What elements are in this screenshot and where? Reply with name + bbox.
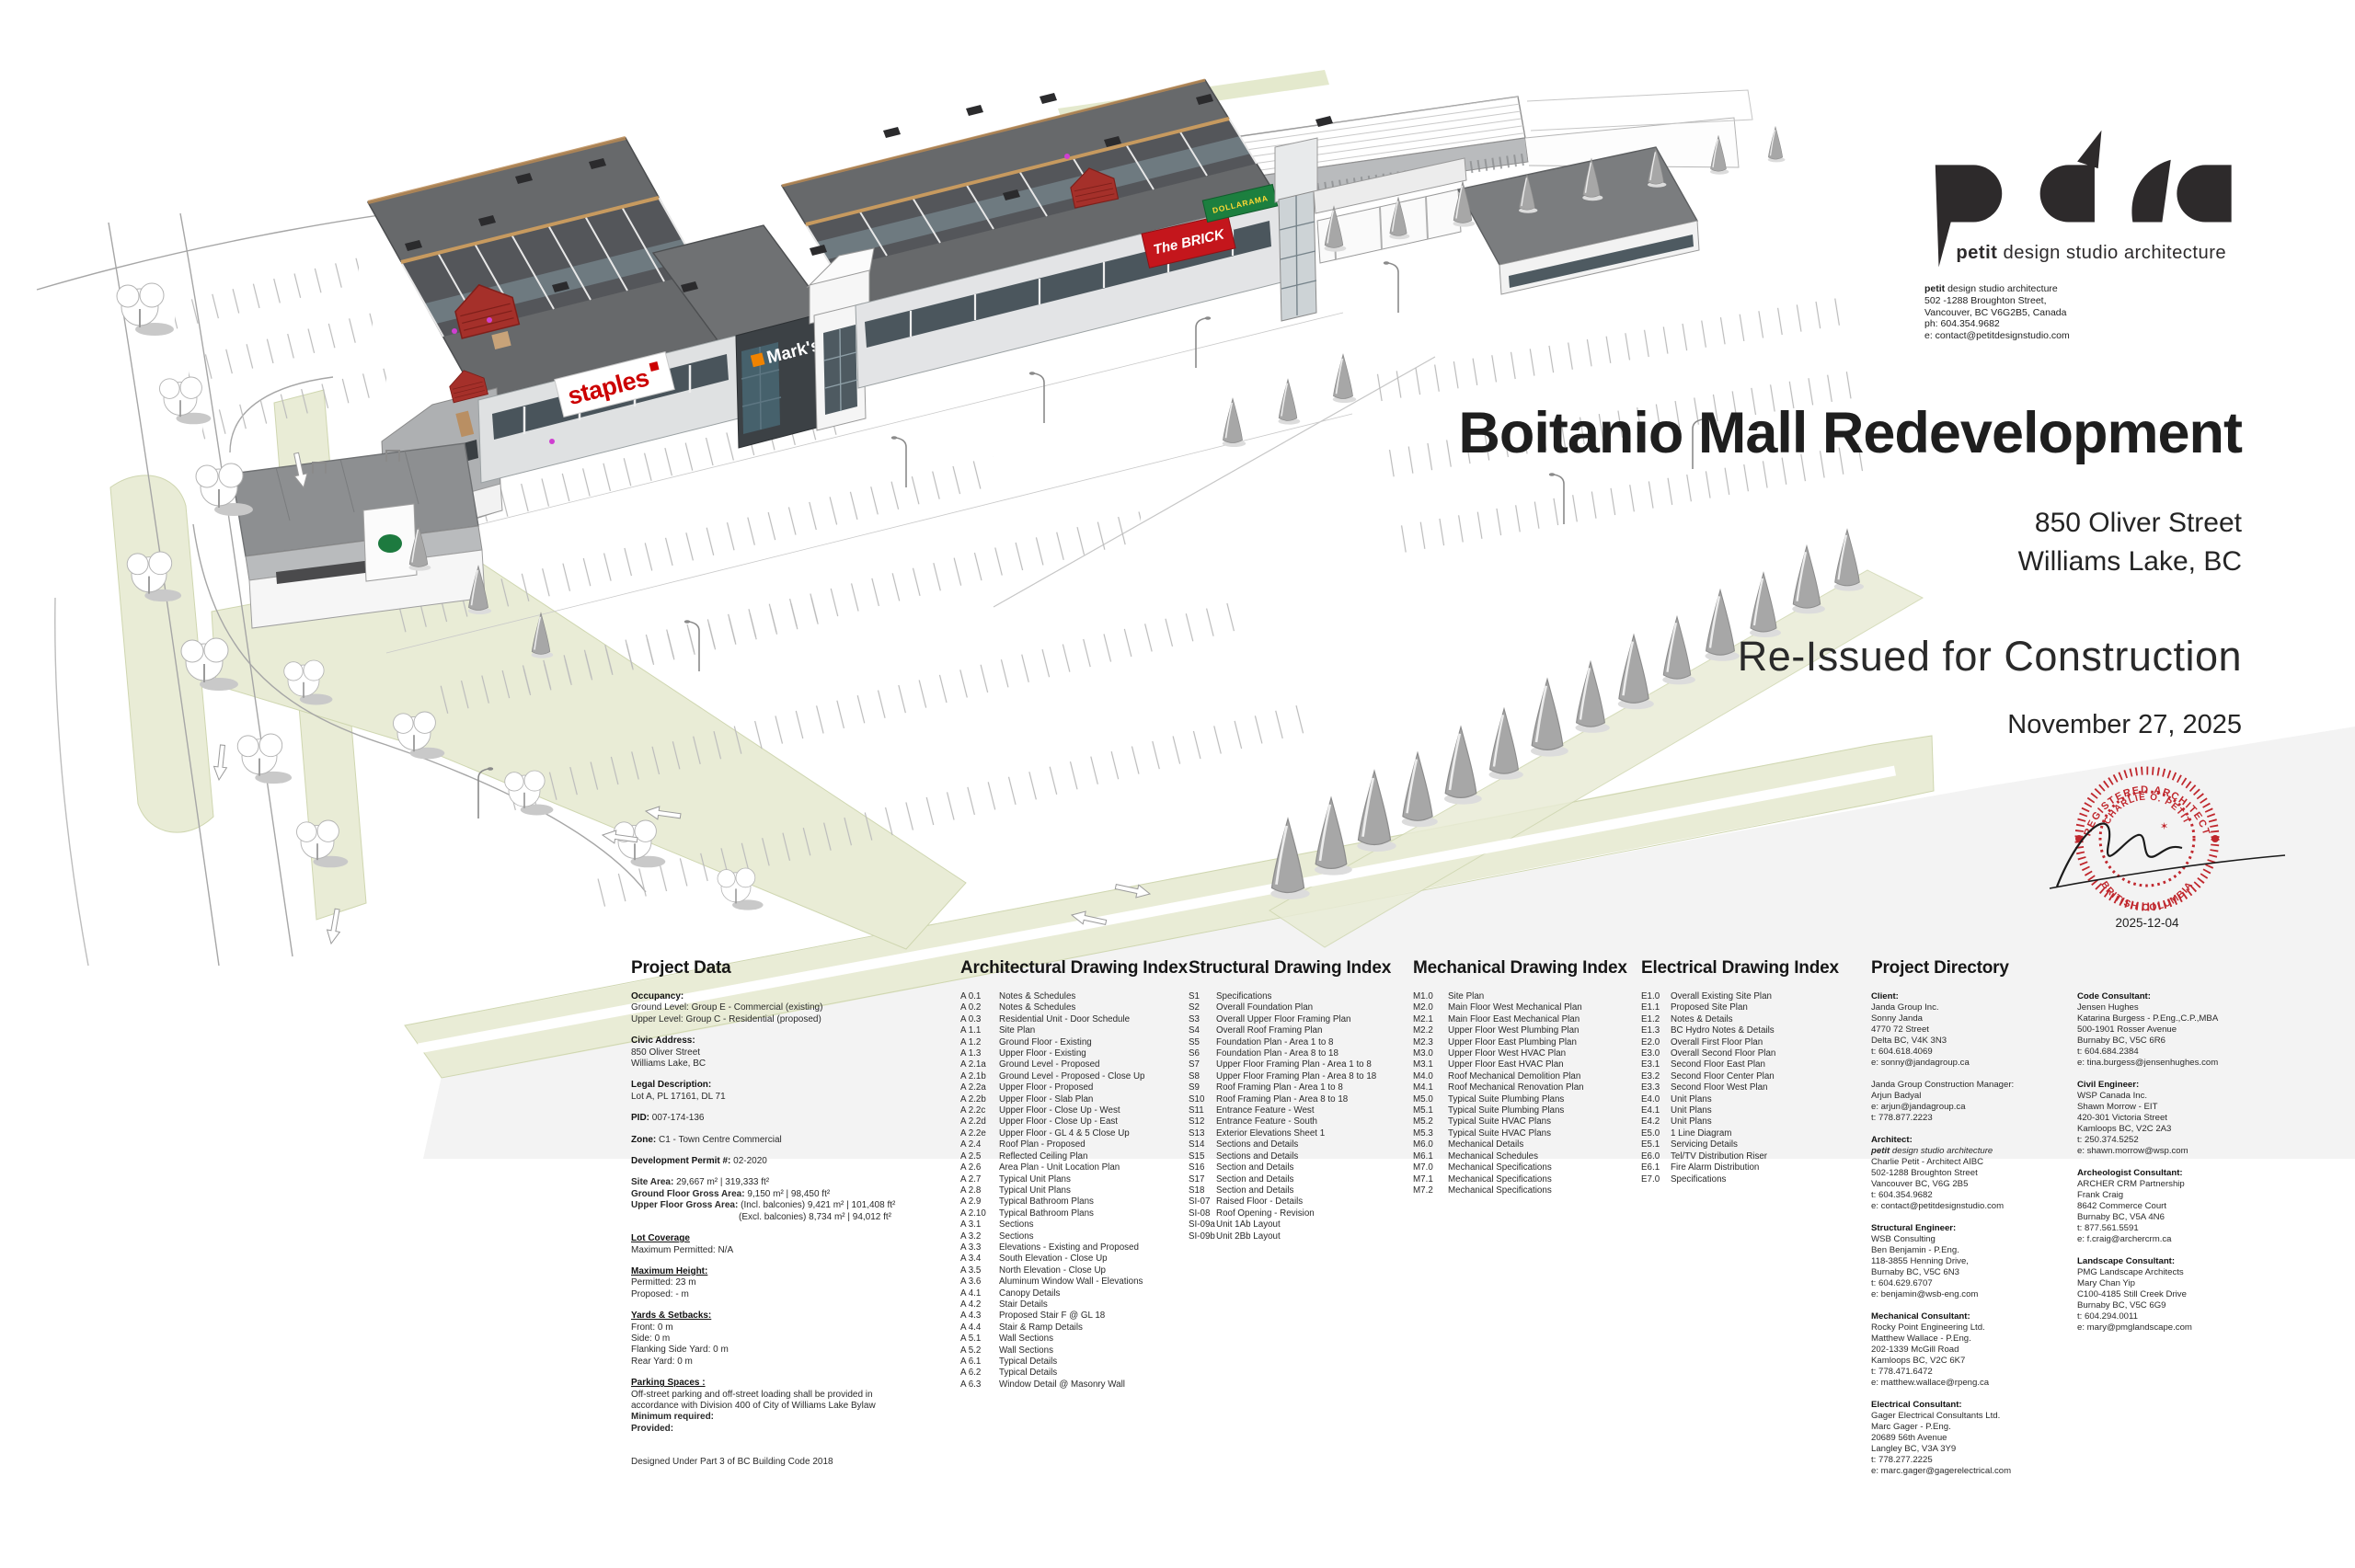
- index-entry: E7.0Specifications: [1641, 1174, 1867, 1185]
- index-entry: E4.0Unit Plans: [1641, 1094, 1867, 1105]
- structural-index-list: S1SpecificationsS2Overall Foundation Pla…: [1189, 991, 1411, 1242]
- index-entry: E2.0Overall First Floor Plan: [1641, 1037, 1867, 1048]
- pdsa-logo: petit design studio architecture: [1923, 127, 2235, 274]
- index-entry: A 2.2cUpper Floor - Close Up - West: [960, 1105, 1189, 1116]
- index-entry: M3.0Upper Floor West HVAC Plan: [1413, 1048, 1637, 1059]
- project-directory-title: Project Directory: [1871, 958, 2269, 979]
- project-data-block: Civic Address:850 Oliver StreetWilliams …: [631, 1036, 936, 1070]
- structural-index-column: Structural Drawing Index S1Specification…: [1189, 958, 1411, 1242]
- stamp-date: 2025-12-04: [2115, 916, 2179, 930]
- index-entry: A 6.2Typical Details: [960, 1368, 1189, 1379]
- index-entry: M2.3Upper Floor East Plumbing Plan: [1413, 1037, 1637, 1048]
- index-entry: E5.01 Line Diagram: [1641, 1128, 1867, 1139]
- index-entry: A 2.1aGround Level - Proposed: [960, 1059, 1189, 1070]
- project-data-blocks: Occupancy:Ground Level: Group E - Commer…: [631, 991, 936, 1468]
- index-entry: S11Entrance Feature - West: [1189, 1105, 1411, 1116]
- project-data-block: Designed Under Part 3 of BC Building Cod…: [631, 1445, 936, 1468]
- index-entry: S13Exterior Elevations Sheet 1: [1189, 1128, 1411, 1139]
- directory-entry: Mechanical Consultant:Rocky Point Engine…: [1871, 1311, 2062, 1389]
- index-entry: A 1.2Ground Floor - Existing: [960, 1037, 1189, 1048]
- project-data-block: Lot CoverageMaximum Permitted: N/A: [631, 1233, 936, 1256]
- index-entry: E1.2Notes & Details: [1641, 1014, 1867, 1025]
- index-entry: A 1.1Site Plan: [960, 1025, 1189, 1036]
- stamp-star: ✶: [2160, 821, 2168, 832]
- title-sheet: staples Mark's The B: [0, 0, 2355, 1568]
- index-entry: M2.0Main Floor West Mechanical Plan: [1413, 1002, 1637, 1013]
- project-data-block: PID: 007-174-136: [631, 1113, 936, 1124]
- pad-building-starbucks: [232, 443, 485, 628]
- index-entry: A 4.3Proposed Stair F @ GL 18: [960, 1310, 1189, 1322]
- index-entry: A 2.7Typical Unit Plans: [960, 1174, 1189, 1185]
- starbucks-logo-dot: [378, 534, 402, 553]
- index-entry: A 0.3Residential Unit - Door Schedule: [960, 1014, 1189, 1025]
- architectural-index-list: A 0.1Notes & SchedulesA 0.2Notes & Sched…: [960, 991, 1189, 1391]
- index-entry: E4.1Unit Plans: [1641, 1105, 1867, 1116]
- directory-column-2: Code Consultant:Jensen HughesKatarina Bu…: [2077, 991, 2269, 1488]
- architectural-index-column: Architectural Drawing Index A 0.1Notes &…: [960, 958, 1189, 1391]
- project-address: 850 Oliver Street Williams Lake, BC: [1156, 504, 2242, 581]
- index-entry: M2.2Upper Floor West Plumbing Plan: [1413, 1025, 1637, 1036]
- index-entry: A 2.10Typical Bathroom Plans: [960, 1208, 1189, 1219]
- index-entry: SI-08Roof Opening - Revision: [1189, 1208, 1411, 1219]
- index-entry: M7.1Mechanical Specifications: [1413, 1174, 1637, 1185]
- firm-email: e: contact@petitdesignstudio.com: [1924, 330, 2070, 342]
- index-entry: A 3.5North Elevation - Close Up: [960, 1265, 1189, 1276]
- index-entry: S6Foundation Plan - Area 8 to 18: [1189, 1048, 1411, 1059]
- firm-city: Vancouver, BC V6G2B5, Canada: [1924, 307, 2070, 319]
- index-entry: M4.0Roof Mechanical Demolition Plan: [1413, 1071, 1637, 1082]
- firm-name-line: petit design studio architecture: [1924, 283, 2070, 295]
- index-entry: S17Section and Details: [1189, 1174, 1411, 1185]
- index-entry: S8Upper Floor Framing Plan - Area 8 to 1…: [1189, 1071, 1411, 1082]
- project-data-block: Site Area: 29,667 m² | 319,333 ft²Ground…: [631, 1177, 936, 1223]
- index-entry: A 5.1Wall Sections: [960, 1333, 1189, 1345]
- index-entry: S7Upper Floor Framing Plan - Area 1 to 8: [1189, 1059, 1411, 1070]
- project-data-block: Occupancy:Ground Level: Group E - Commer…: [631, 991, 936, 1025]
- architectural-index-title: Architectural Drawing Index: [960, 958, 1189, 979]
- index-entry: M3.1Upper Floor East HVAC Plan: [1413, 1059, 1637, 1070]
- logo-letter-a: [2177, 165, 2231, 222]
- index-entry: S12Entrance Feature - South: [1189, 1116, 1411, 1127]
- index-entry: S18Section and Details: [1189, 1185, 1411, 1196]
- index-entry: A 5.2Wall Sections: [960, 1345, 1189, 1356]
- index-entry: A 3.6Aluminum Window Wall - Elevations: [960, 1276, 1189, 1288]
- index-entry: A 2.6Area Plan - Unit Location Plan: [960, 1162, 1189, 1173]
- directory-entry: Electrical Consultant:Gager Electrical C…: [1871, 1400, 2062, 1477]
- index-entry: S1Specifications: [1189, 991, 1411, 1002]
- directory-entry: Archeologist Consultant:ARCHER CRM Partn…: [2077, 1168, 2269, 1245]
- issue-status: Re-Issued for Construction: [1156, 633, 2242, 681]
- index-entry: E1.3BC Hydro Notes & Details: [1641, 1025, 1867, 1036]
- project-data-title: Project Data: [631, 958, 936, 979]
- index-entry: A 6.3Window Detail @ Masonry Wall: [960, 1379, 1189, 1391]
- directory-entry: Civil Engineer:WSP Canada Inc.Shawn Morr…: [2077, 1080, 2269, 1157]
- mechanical-index-title: Mechanical Drawing Index: [1413, 958, 1637, 979]
- index-entry: M6.1Mechanical Schedules: [1413, 1151, 1637, 1162]
- index-entry: SI-09aUnit 1Ab Layout: [1189, 1219, 1411, 1230]
- index-entry: A 1.3Upper Floor - Existing: [960, 1048, 1189, 1059]
- index-entry: M1.0Site Plan: [1413, 991, 1637, 1002]
- index-entry: A 4.1Canopy Details: [960, 1288, 1189, 1299]
- index-entry: S15Sections and Details: [1189, 1151, 1411, 1162]
- project-data-block: Zone: C1 - Town Centre Commercial: [631, 1135, 936, 1146]
- index-entry: A 2.2bUpper Floor - Slab Plan: [960, 1094, 1189, 1105]
- index-entry: SI-07Raised Floor - Details: [1189, 1196, 1411, 1207]
- index-entry: A 4.4Stair & Ramp Details: [960, 1322, 1189, 1333]
- project-data-block: Legal Description:Lot A, PL 17161, DL 71: [631, 1080, 936, 1103]
- index-entry: A 2.2aUpper Floor - Proposed: [960, 1082, 1189, 1093]
- title-block: Boitanio Mall Redevelopment 850 Oliver S…: [1156, 403, 2242, 740]
- directory-entry: Landscape Consultant:PMG Landscape Archi…: [2077, 1256, 2269, 1333]
- index-entry: A 3.3Elevations - Existing and Proposed: [960, 1242, 1189, 1253]
- firm-phone: ph: 604.354.9682: [1924, 318, 2070, 330]
- index-entry: A 3.4South Elevation - Close Up: [960, 1253, 1189, 1265]
- index-entry: A 2.5Reflected Ceiling Plan: [960, 1151, 1189, 1162]
- logo-tagline: petit design studio architecture: [1956, 243, 2226, 263]
- project-data-block: Development Permit #: 02-2020: [631, 1156, 936, 1167]
- index-entry: M5.2Typical Suite HVAC Plans: [1413, 1116, 1637, 1127]
- index-entry: E1.1Proposed Site Plan: [1641, 1002, 1867, 1013]
- index-entry: S4Overall Roof Framing Plan: [1189, 1025, 1411, 1036]
- logo-letter-s: [2131, 160, 2170, 223]
- index-entry: A 4.2Stair Details: [960, 1299, 1189, 1310]
- structural-index-title: Structural Drawing Index: [1189, 958, 1411, 979]
- directory-entry: Janda Group Construction Manager:Arjun B…: [1871, 1080, 2062, 1124]
- logo-letter-d: [2040, 131, 2102, 223]
- index-entry: E1.0Overall Existing Site Plan: [1641, 991, 1867, 1002]
- index-entry: A 0.1Notes & Schedules: [960, 991, 1189, 1002]
- index-entry: E6.1Fire Alarm Distribution: [1641, 1162, 1867, 1173]
- index-entry: S14Sections and Details: [1189, 1139, 1411, 1150]
- project-title: Boitanio Mall Redevelopment: [1156, 403, 2242, 464]
- mechanical-index-list: M1.0Site PlanM2.0Main Floor West Mechani…: [1413, 991, 1637, 1196]
- index-entry: A 2.1bGround Level - Proposed - Close Up: [960, 1071, 1189, 1082]
- index-entry: S9Roof Framing Plan - Area 1 to 8: [1189, 1082, 1411, 1093]
- project-address-line1: 850 Oliver Street: [1156, 504, 2242, 543]
- index-entry: A 2.2eUpper Floor - GL 4 & 5 Close Up: [960, 1128, 1189, 1139]
- index-entry: S5Foundation Plan - Area 1 to 8: [1189, 1037, 1411, 1048]
- directory-entry: Client:Janda Group Inc.Sonny Janda4770 7…: [1871, 991, 2062, 1069]
- project-data-block: Parking Spaces :Off-street parking and o…: [631, 1378, 936, 1435]
- index-entry: A 2.4Roof Plan - Proposed: [960, 1139, 1189, 1150]
- architect-stamp: REGISTERED ARCHITECT CHARLIE O. PETIT BR…: [2044, 734, 2320, 941]
- mechanical-index-column: Mechanical Drawing Index M1.0Site PlanM2…: [1413, 958, 1637, 1196]
- project-address-line2: Williams Lake, BC: [1156, 543, 2242, 581]
- index-entry: A 2.9Typical Bathroom Plans: [960, 1196, 1189, 1207]
- index-entry: M5.3Typical Suite HVAC Plans: [1413, 1128, 1637, 1139]
- index-entry: M4.1Roof Mechanical Renovation Plan: [1413, 1082, 1637, 1093]
- index-entry: M2.1Main Floor East Mechanical Plan: [1413, 1014, 1637, 1025]
- index-entry: A 2.2dUpper Floor - Close Up - East: [960, 1116, 1189, 1127]
- index-entry: S3Overall Upper Floor Framing Plan: [1189, 1014, 1411, 1025]
- index-entry: E3.0Overall Second Floor Plan: [1641, 1048, 1867, 1059]
- index-entry: E6.0Tel/TV Distribution Riser: [1641, 1151, 1867, 1162]
- index-entry: S10Roof Framing Plan - Area 8 to 18: [1189, 1094, 1411, 1105]
- directory-entry: Architect:petit design studio architectu…: [1871, 1135, 2062, 1212]
- index-entry: A 3.2Sections: [960, 1231, 1189, 1242]
- index-entry: SI-09bUnit 2Bb Layout: [1189, 1231, 1411, 1242]
- index-entry: E5.1Servicing Details: [1641, 1139, 1867, 1150]
- electrical-index-column: Electrical Drawing Index E1.0Overall Exi…: [1641, 958, 1867, 1185]
- directory-entry: Structural Engineer:WSB ConsultingBen Be…: [1871, 1223, 2062, 1300]
- firm-address-block: petit design studio architecture 502 -12…: [1924, 283, 2070, 342]
- electrical-index-list: E1.0Overall Existing Site PlanE1.1Propos…: [1641, 991, 1867, 1185]
- index-entry: M7.2Mechanical Specifications: [1413, 1185, 1637, 1196]
- index-entry: S2Overall Foundation Plan: [1189, 1002, 1411, 1013]
- index-entry: M5.1Typical Suite Plumbing Plans: [1413, 1105, 1637, 1116]
- index-entry: M5.0Typical Suite Plumbing Plans: [1413, 1094, 1637, 1105]
- index-entry: E3.1Second Floor East Plan: [1641, 1059, 1867, 1070]
- index-entry: E3.2Second Floor Center Plan: [1641, 1071, 1867, 1082]
- index-entry: A 3.1Sections: [960, 1219, 1189, 1230]
- index-entry: M7.0Mechanical Specifications: [1413, 1162, 1637, 1173]
- project-data-block: Maximum Height:Permitted: 23 mProposed: …: [631, 1266, 936, 1300]
- directory-column-1: Client:Janda Group Inc.Sonny Janda4770 7…: [1871, 991, 2062, 1488]
- index-entry: M6.0Mechanical Details: [1413, 1139, 1637, 1150]
- project-data-block: Yards & Setbacks:Front: 0 mSide: 0 mFlan…: [631, 1310, 936, 1368]
- index-entry: A 2.8Typical Unit Plans: [960, 1185, 1189, 1196]
- project-data-column: Project Data Occupancy:Ground Level: Gro…: [631, 958, 936, 1478]
- index-entry: S16Section and Details: [1189, 1162, 1411, 1173]
- project-directory-column: Project Directory Client:Janda Group Inc…: [1871, 958, 2269, 1488]
- index-entry: A 6.1Typical Details: [960, 1356, 1189, 1368]
- electrical-index-title: Electrical Drawing Index: [1641, 958, 1867, 979]
- firm-street: 502 -1288 Broughton Street,: [1924, 295, 2070, 307]
- index-entry: E3.3Second Floor West Plan: [1641, 1082, 1867, 1093]
- index-entry: A 0.2Notes & Schedules: [960, 1002, 1189, 1013]
- index-entry: E4.2Unit Plans: [1641, 1116, 1867, 1127]
- directory-entry: Code Consultant:Jensen HughesKatarina Bu…: [2077, 991, 2269, 1069]
